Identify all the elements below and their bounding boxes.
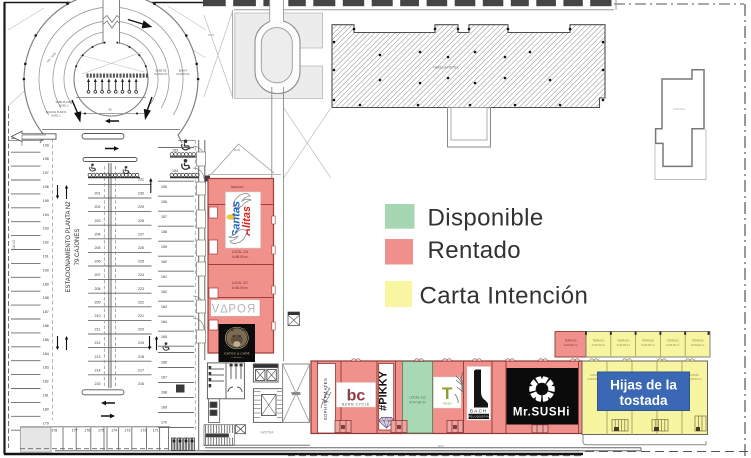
svg-text:30: 30 xyxy=(108,108,112,112)
svg-text:LOCAL 212: LOCAL 212 xyxy=(409,396,426,400)
svg-text:162: 162 xyxy=(161,290,167,294)
svg-text:212: 212 xyxy=(95,341,101,345)
svg-text:199: 199 xyxy=(43,143,49,147)
svg-text:LOCAL 217: LOCAL 217 xyxy=(232,281,249,285)
svg-text:184: 184 xyxy=(43,352,49,356)
svg-text:BURN CYCLE: BURN CYCLE xyxy=(342,403,370,407)
svg-text:179: 179 xyxy=(43,421,49,425)
svg-text:BACH: BACH xyxy=(470,409,488,414)
svg-text:A=23.00 m²: A=23.00 m² xyxy=(691,343,705,347)
svg-text:Rentado: Rentado xyxy=(428,237,522,264)
svg-text:168: 168 xyxy=(161,391,167,395)
svg-text:193: 193 xyxy=(43,227,49,231)
svg-text:Mr.SUSHi: Mr.SUSHi xyxy=(513,407,570,419)
svg-text:A=23.00 m²: A=23.00 m² xyxy=(592,343,606,347)
svg-text:210: 210 xyxy=(95,314,101,318)
svg-text:TERRAZA: TERRAZA xyxy=(230,185,243,189)
svg-text:153: 153 xyxy=(172,149,178,153)
svg-text:189: 189 xyxy=(43,282,49,286)
svg-text:227: 227 xyxy=(138,232,144,236)
svg-text:A=23.00 m²: A=23.00 m² xyxy=(641,343,655,347)
svg-text:209: 209 xyxy=(95,300,101,304)
svg-text:215: 215 xyxy=(95,382,101,386)
svg-text:TERRAZA: TERRAZA xyxy=(667,339,679,343)
svg-text:MCB: MCB xyxy=(208,33,214,37)
svg-text:MCA: MCA xyxy=(438,444,444,448)
svg-text:177: 177 xyxy=(72,429,78,433)
svg-text:223: 223 xyxy=(138,287,144,291)
svg-text:LOCAL 216: LOCAL 216 xyxy=(232,250,249,254)
svg-text:LOCAL: LOCAL xyxy=(690,373,699,377)
svg-text:218: 218 xyxy=(138,355,144,359)
svg-text:Hijas de la: Hijas de la xyxy=(610,378,677,393)
svg-text:208: 208 xyxy=(95,287,101,291)
svg-text:PLANTA N1: PLANTA N1 xyxy=(176,73,190,76)
svg-text:PLANTA N1: PLANTA N1 xyxy=(154,73,168,76)
svg-text:206: 206 xyxy=(95,260,101,264)
svg-text:A=23.00 m²: A=23.00 m² xyxy=(564,343,578,347)
svg-text:160: 160 xyxy=(161,260,167,264)
svg-text:214: 214 xyxy=(95,368,101,372)
svg-text:196: 196 xyxy=(43,185,49,189)
svg-text:217: 217 xyxy=(138,368,144,372)
svg-text:192: 192 xyxy=(43,241,49,245)
svg-text:181: 181 xyxy=(43,394,49,398)
svg-text:MCB: MCB xyxy=(234,148,240,152)
svg-text:228: 228 xyxy=(138,219,144,223)
svg-text:202: 202 xyxy=(95,205,101,209)
svg-text:AZOTEA: AZOTEA xyxy=(261,431,275,435)
svg-text:VACIO: VACIO xyxy=(12,239,16,250)
svg-text:154: 154 xyxy=(172,169,178,173)
svg-text:201: 201 xyxy=(95,192,101,196)
svg-text:225: 225 xyxy=(138,260,144,264)
svg-text:156: 156 xyxy=(161,200,167,204)
svg-text:182: 182 xyxy=(43,380,49,384)
svg-text:173: 173 xyxy=(124,429,130,433)
svg-text:178: 178 xyxy=(51,429,57,433)
svg-text:195: 195 xyxy=(43,199,49,203)
svg-text:220: 220 xyxy=(138,328,144,332)
svg-text:157: 157 xyxy=(161,215,167,219)
svg-text:tostada: tostada xyxy=(619,393,668,408)
svg-text:230: 230 xyxy=(138,192,144,196)
svg-text:174: 174 xyxy=(111,429,117,433)
svg-text:194: 194 xyxy=(43,213,49,217)
svg-text:A=23.00 m²: A=23.00 m² xyxy=(666,343,680,347)
svg-text:205: 205 xyxy=(95,246,101,250)
svg-text:A=86.00 m²: A=86.00 m² xyxy=(232,255,249,259)
svg-text:ESTACIONAMIENTO PLANTA N2: ESTACIONAMIENTO PLANTA N2 xyxy=(66,201,72,293)
svg-text:180: 180 xyxy=(43,407,49,411)
svg-text:226: 226 xyxy=(138,246,144,250)
svg-text:175: 175 xyxy=(98,429,104,433)
svg-text:185: 185 xyxy=(43,338,49,342)
svg-text:VACIO: VACIO xyxy=(292,392,301,396)
svg-text:219: 219 xyxy=(138,341,144,345)
svg-text:203: 203 xyxy=(95,219,101,223)
svg-text:A=23.00 m²: A=23.00 m² xyxy=(616,343,630,347)
svg-text:207: 207 xyxy=(95,273,101,277)
svg-text:TIENDA: TIENDA xyxy=(442,402,452,406)
svg-text:164: 164 xyxy=(161,320,167,324)
svg-text:79 CAJONES: 79 CAJONES xyxy=(75,229,81,266)
svg-text:224: 224 xyxy=(138,273,144,277)
svg-text:166: 166 xyxy=(161,361,167,365)
svg-text:197: 197 xyxy=(43,171,49,175)
svg-text:HUELLA HOTEL: HUELLA HOTEL xyxy=(433,66,458,70)
svg-text:GATOS & CAFÉ: GATOS & CAFÉ xyxy=(224,351,250,356)
svg-text:159: 159 xyxy=(161,245,167,249)
svg-text:198: 198 xyxy=(43,157,49,161)
svg-text:Carta Intención: Carta Intención xyxy=(420,283,589,310)
svg-text:216: 216 xyxy=(138,382,144,386)
svg-text:213: 213 xyxy=(95,355,101,359)
svg-text:TERRAZA: TERRAZA xyxy=(617,339,629,343)
svg-text:169: 169 xyxy=(161,406,167,410)
svg-text:204: 204 xyxy=(95,232,101,236)
svg-text:— coffee bar —: — coffee bar — xyxy=(230,357,244,359)
svg-text:183: 183 xyxy=(43,366,49,370)
svg-text:SOPHYK PILATES: SOPHYK PILATES xyxy=(323,378,328,421)
svg-text:PELUQUERIA: PELUQUERIA xyxy=(468,415,489,419)
svg-text:221: 221 xyxy=(138,314,144,318)
svg-text:165: 165 xyxy=(161,335,167,339)
svg-text:172: 172 xyxy=(141,429,147,433)
svg-text:186: 186 xyxy=(43,324,49,328)
svg-text:NIVEL 2: NIVEL 2 xyxy=(59,104,69,107)
svg-text:V∆POЯ: V∆POЯ xyxy=(212,304,257,316)
svg-text:TERRAZA: TERRAZA xyxy=(692,339,704,343)
svg-text:A=60.00 m²: A=60.00 m² xyxy=(232,286,249,290)
svg-text:A=47.00 m²: A=47.00 m² xyxy=(409,400,426,404)
svg-text:171: 171 xyxy=(153,429,159,433)
svg-text:211: 211 xyxy=(95,328,101,332)
svg-text:170: 170 xyxy=(161,421,167,425)
svg-text:161: 161 xyxy=(161,275,167,279)
svg-text:191: 191 xyxy=(43,255,49,259)
svg-text:T: T xyxy=(442,384,453,403)
svg-text:229: 229 xyxy=(138,205,144,209)
svg-text:TERRAZA: TERRAZA xyxy=(592,339,604,343)
svg-text:TERRAZA: TERRAZA xyxy=(642,339,654,343)
svg-text:155: 155 xyxy=(161,185,167,189)
svg-text:190: 190 xyxy=(43,268,49,272)
svg-text:163: 163 xyxy=(161,305,167,309)
svg-text:AZOTEA: AZOTEA xyxy=(673,107,685,111)
svg-text:222: 222 xyxy=(138,300,144,304)
svg-text:158: 158 xyxy=(161,230,167,234)
svg-text:NIVEL 1: NIVEL 1 xyxy=(51,114,61,117)
svg-text:176: 176 xyxy=(84,429,90,433)
svg-text:TERRAZA: TERRAZA xyxy=(564,339,576,343)
svg-text:187: 187 xyxy=(43,310,49,314)
svg-text:188: 188 xyxy=(43,296,49,300)
svg-text:Disponible: Disponible xyxy=(428,205,544,232)
svg-text:#PIKKY: #PIKKY xyxy=(378,370,390,410)
svg-text:167: 167 xyxy=(161,376,167,380)
